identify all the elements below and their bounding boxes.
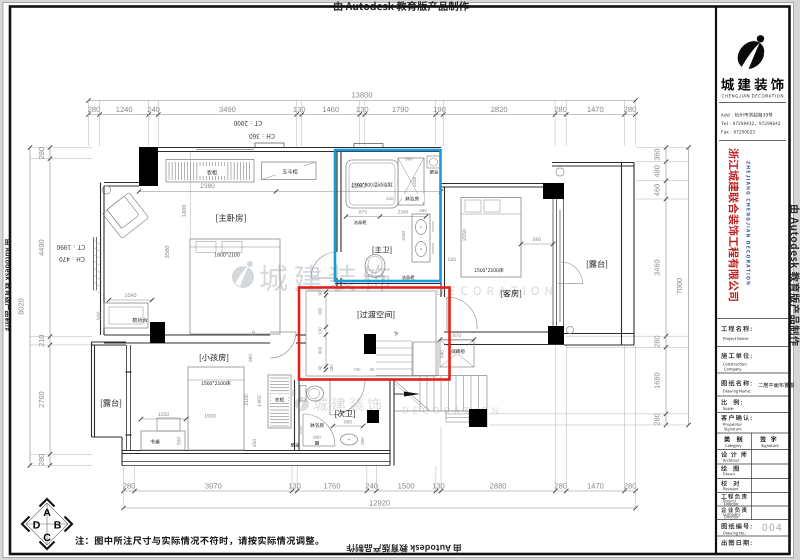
svg-text:280: 280 (554, 105, 567, 114)
svg-text:2380: 2380 (200, 183, 215, 190)
svg-text:900: 900 (313, 435, 321, 440)
svg-text:870: 870 (453, 333, 461, 339)
svg-text:1200: 1200 (412, 176, 417, 187)
svg-text:280: 280 (624, 481, 637, 490)
svg-text:280: 280 (37, 147, 46, 159)
svg-text:860: 860 (533, 237, 542, 243)
svg-text:450: 450 (252, 439, 258, 447)
svg-text:2880: 2880 (490, 481, 507, 490)
svg-text:980: 980 (248, 354, 254, 362)
svg-text:130: 130 (293, 105, 306, 114)
svg-text:130: 130 (432, 481, 445, 490)
svg-text:500: 500 (177, 437, 183, 445)
svg-text:D: D (33, 520, 41, 532)
svg-text:800: 800 (318, 307, 323, 315)
svg-text:8020: 8020 (17, 298, 26, 314)
svg-text:280: 280 (653, 336, 662, 348)
svg-text:1460: 1460 (322, 105, 339, 114)
svg-text:1470: 1470 (587, 105, 604, 114)
svg-text:1470: 1470 (587, 481, 604, 490)
svg-text:240: 240 (147, 105, 160, 114)
svg-text:280: 280 (653, 413, 662, 425)
svg-text:1500: 1500 (398, 481, 415, 490)
svg-text:280: 280 (88, 105, 101, 114)
svg-text:1500: 1500 (401, 230, 406, 241)
svg-text:1790: 1790 (392, 105, 409, 114)
svg-text:90: 90 (251, 330, 256, 335)
svg-text:90: 90 (370, 367, 375, 372)
svg-text:7000: 7000 (675, 278, 684, 294)
svg-text:280: 280 (329, 364, 334, 372)
svg-text:130: 130 (356, 105, 369, 114)
svg-text:12920: 12920 (369, 498, 390, 507)
svg-text:90: 90 (318, 290, 323, 295)
svg-text:4490: 4490 (37, 239, 46, 255)
svg-text:130: 130 (288, 481, 301, 490)
svg-text:1680: 1680 (653, 372, 662, 388)
svg-text:1150: 1150 (158, 412, 169, 418)
svg-text:360: 360 (653, 148, 662, 160)
svg-text:790: 790 (354, 367, 362, 372)
svg-text:1000: 1000 (298, 425, 303, 435)
svg-text:3970: 3970 (205, 481, 222, 490)
svg-text:1400: 1400 (181, 205, 188, 218)
svg-text:2820: 2820 (491, 105, 508, 114)
svg-text:C: C (43, 532, 51, 544)
svg-text:280: 280 (624, 105, 637, 114)
svg-text:500: 500 (360, 437, 365, 445)
svg-text:1040: 1040 (125, 293, 137, 299)
svg-text:1240: 1240 (116, 105, 133, 114)
svg-text:515: 515 (386, 196, 394, 201)
svg-text:580: 580 (419, 208, 427, 213)
svg-text:900: 900 (405, 157, 413, 162)
svg-text:780: 780 (292, 389, 297, 397)
svg-text:800: 800 (318, 346, 323, 354)
svg-text:2760: 2760 (37, 391, 46, 407)
svg-text:840: 840 (440, 350, 445, 358)
svg-text:480: 480 (653, 165, 662, 177)
svg-text:280: 280 (554, 481, 567, 490)
svg-text:B: B (54, 520, 62, 532)
svg-text:280: 280 (123, 481, 136, 490)
svg-text:190: 190 (318, 327, 323, 335)
svg-text:1500: 1500 (204, 414, 216, 420)
svg-text:1760: 1760 (324, 481, 341, 490)
svg-text:875: 875 (359, 210, 367, 216)
svg-text:2240: 2240 (398, 210, 409, 216)
svg-text:1460: 1460 (257, 395, 263, 407)
svg-text:90: 90 (318, 365, 323, 370)
svg-text:3490: 3490 (219, 105, 236, 114)
svg-text:A: A (43, 507, 51, 519)
svg-text:3460: 3460 (653, 259, 662, 275)
svg-text:860: 860 (344, 420, 352, 426)
svg-text:520: 520 (448, 257, 457, 263)
svg-text:460: 460 (653, 184, 662, 196)
svg-text:500: 500 (97, 312, 103, 321)
svg-text:2100: 2100 (244, 394, 250, 406)
svg-text:190: 190 (433, 105, 446, 114)
svg-text:3580: 3580 (164, 246, 171, 259)
svg-text:280: 280 (37, 454, 46, 466)
svg-text:13800: 13800 (351, 91, 372, 100)
svg-text:2050: 2050 (462, 229, 468, 241)
svg-text:240: 240 (365, 481, 378, 490)
